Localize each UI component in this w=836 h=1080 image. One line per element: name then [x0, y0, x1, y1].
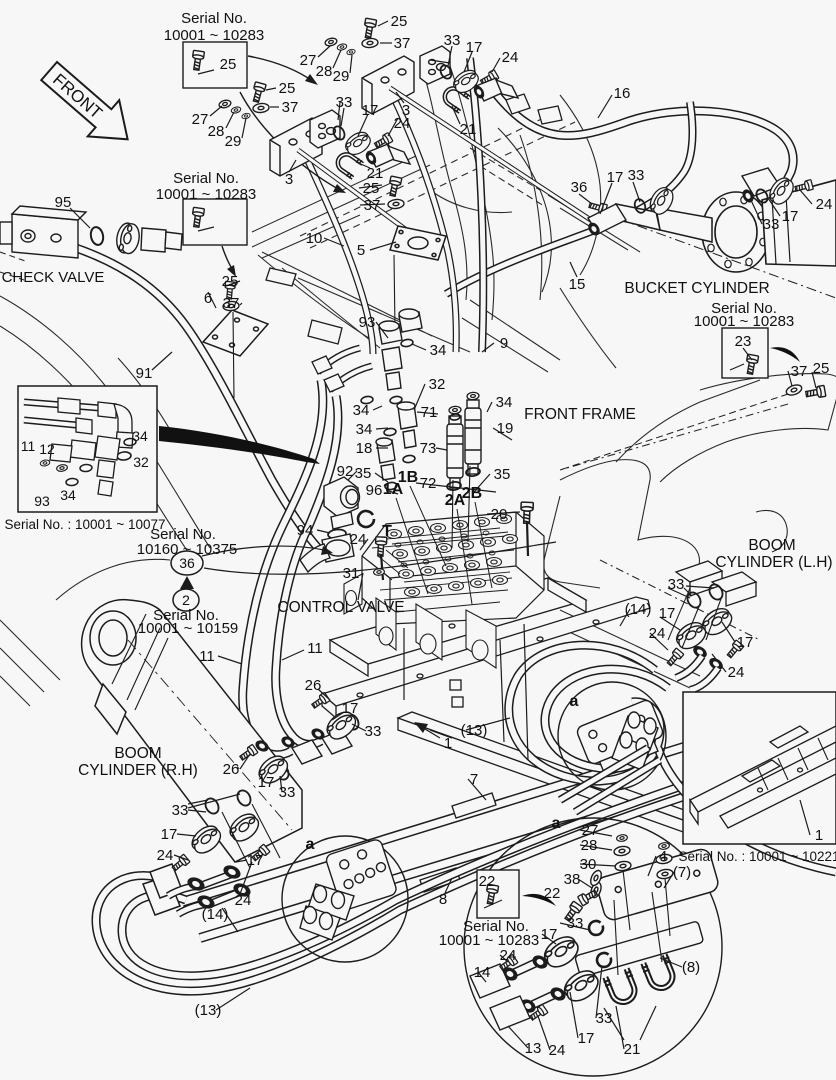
svg-text:a: a [570, 693, 579, 710]
svg-text:35: 35 [494, 466, 511, 483]
svg-text:10160 ~ 10375: 10160 ~ 10375 [137, 541, 238, 558]
svg-text:22: 22 [544, 885, 561, 902]
svg-text:30: 30 [580, 856, 597, 873]
svg-text:17: 17 [782, 208, 799, 225]
svg-text:Serial No.: Serial No. [173, 170, 239, 187]
svg-text:1: 1 [444, 735, 452, 752]
svg-text:10: 10 [306, 230, 323, 247]
svg-text:24: 24 [500, 947, 517, 964]
svg-text:18: 18 [356, 440, 373, 457]
svg-text:2: 2 [182, 592, 190, 608]
svg-text:6: 6 [204, 290, 212, 307]
svg-text:1: 1 [815, 827, 823, 844]
svg-text:33: 33 [668, 576, 685, 593]
svg-text:10001 ~ 10159: 10001 ~ 10159 [138, 620, 239, 637]
svg-text:10001 ~ 10283: 10001 ~ 10283 [156, 186, 257, 203]
svg-text:37: 37 [364, 197, 381, 214]
svg-text:23: 23 [735, 333, 752, 350]
svg-text:17: 17 [362, 102, 379, 119]
svg-text:25: 25 [279, 80, 296, 97]
svg-text:33: 33 [596, 1010, 613, 1027]
svg-text:27: 27 [300, 52, 317, 69]
svg-text:21: 21 [460, 121, 477, 138]
svg-text:14: 14 [474, 964, 491, 981]
svg-text:93: 93 [359, 314, 376, 331]
svg-text:5: 5 [357, 242, 365, 259]
svg-text:17: 17 [258, 774, 275, 791]
svg-text:72: 72 [420, 475, 437, 492]
svg-text:37: 37 [282, 99, 299, 116]
svg-text:11: 11 [21, 438, 36, 454]
svg-text:33: 33 [172, 802, 189, 819]
svg-text:(13): (13) [461, 722, 488, 739]
svg-text:32: 32 [133, 454, 149, 470]
svg-text:9: 9 [500, 335, 508, 352]
svg-text:92: 92 [337, 463, 354, 480]
svg-text:28: 28 [208, 123, 225, 140]
svg-text:33: 33 [279, 784, 296, 801]
svg-text:25: 25 [222, 273, 239, 290]
svg-text:CYLINDER (R.H): CYLINDER (R.H) [78, 762, 198, 779]
svg-text:33: 33 [763, 216, 780, 233]
svg-text:34: 34 [356, 421, 373, 438]
svg-text:33: 33 [336, 94, 353, 111]
svg-text:Serial No.: Serial No. [181, 10, 247, 27]
svg-text:17: 17 [541, 926, 558, 943]
svg-text:34: 34 [60, 487, 76, 503]
svg-text:33: 33 [365, 723, 382, 740]
svg-text:BOOM: BOOM [114, 745, 161, 762]
svg-text:91: 91 [136, 365, 153, 382]
svg-text:73: 73 [420, 440, 437, 457]
svg-text:33: 33 [444, 32, 461, 49]
svg-text:17: 17 [578, 1030, 595, 1047]
svg-text:16: 16 [614, 85, 631, 102]
svg-text:CYLINDER (L.H): CYLINDER (L.H) [715, 554, 832, 571]
svg-text:10001 ~ 10283: 10001 ~ 10283 [164, 27, 265, 44]
svg-text:22: 22 [479, 873, 496, 890]
svg-text:71: 71 [421, 404, 438, 421]
svg-text:CONTROL VALVE: CONTROL VALVE [277, 599, 404, 616]
svg-text:25: 25 [391, 13, 408, 30]
svg-text:95: 95 [55, 194, 72, 211]
svg-text:93: 93 [34, 493, 50, 509]
svg-text:7: 7 [470, 771, 478, 788]
svg-text:26: 26 [305, 677, 322, 694]
svg-text:24: 24 [502, 49, 519, 66]
svg-text:17: 17 [659, 605, 676, 622]
svg-text:24: 24 [649, 625, 666, 642]
svg-text:35: 35 [355, 465, 372, 482]
svg-text:15: 15 [569, 276, 586, 293]
svg-text:a: a [552, 815, 561, 832]
svg-text:25: 25 [220, 56, 237, 73]
svg-text:37: 37 [791, 363, 808, 380]
svg-text:(14): (14) [625, 601, 652, 618]
svg-text:CHECK VALVE: CHECK VALVE [2, 269, 105, 286]
svg-text:T: T [382, 523, 392, 540]
svg-text:20: 20 [491, 506, 508, 523]
svg-text:24: 24 [157, 847, 174, 864]
svg-text:24: 24 [350, 531, 367, 548]
svg-text:29: 29 [333, 68, 350, 85]
svg-text:(8): (8) [682, 959, 700, 976]
svg-text:19: 19 [497, 420, 514, 437]
svg-text:24: 24 [394, 115, 411, 132]
svg-text:11: 11 [199, 648, 215, 665]
svg-text:3: 3 [285, 171, 293, 188]
svg-text:29: 29 [225, 133, 242, 150]
svg-text:37: 37 [223, 295, 240, 312]
svg-text:2B: 2B [462, 485, 482, 502]
svg-text:21: 21 [624, 1041, 641, 1058]
svg-text:25: 25 [813, 360, 830, 377]
svg-text:17: 17 [607, 169, 624, 186]
svg-text:BOOM: BOOM [748, 537, 795, 554]
svg-text:11: 11 [307, 640, 323, 657]
svg-text:BUCKET CYLINDER: BUCKET CYLINDER [624, 280, 769, 297]
svg-text:31: 31 [343, 565, 360, 582]
svg-text:96: 96 [366, 482, 383, 499]
svg-text:17: 17 [161, 826, 178, 843]
svg-text:38: 38 [564, 871, 581, 888]
svg-text:1B: 1B [398, 469, 418, 486]
svg-text:28: 28 [581, 837, 598, 854]
svg-text:24: 24 [549, 1042, 566, 1059]
svg-text:36: 36 [571, 179, 588, 196]
svg-text:FRONT FRAME: FRONT FRAME [524, 406, 636, 423]
svg-text:34: 34 [132, 428, 148, 444]
svg-text:17: 17 [466, 39, 483, 56]
svg-text:12: 12 [39, 441, 55, 457]
svg-text:(14): (14) [202, 906, 229, 923]
svg-text:10001 ~ 10283: 10001 ~ 10283 [694, 313, 795, 330]
svg-text:28: 28 [316, 63, 333, 80]
svg-text:17: 17 [247, 852, 264, 869]
svg-text:34: 34 [353, 402, 370, 419]
svg-text:27: 27 [192, 111, 209, 128]
svg-text:(7): (7) [673, 864, 691, 881]
svg-text:24: 24 [728, 664, 745, 681]
svg-text:17: 17 [737, 634, 754, 651]
svg-text:Serial No. : 10001 ~ 10077: Serial No. : 10001 ~ 10077 [5, 517, 166, 532]
svg-text:10001 ~ 10283: 10001 ~ 10283 [439, 932, 540, 949]
svg-text:a: a [306, 836, 315, 853]
svg-text:94: 94 [297, 522, 314, 539]
svg-text:34: 34 [496, 394, 513, 411]
svg-text:26: 26 [223, 761, 240, 778]
svg-text:Serial No. : 10001 ~ 10221: Serial No. : 10001 ~ 10221 [679, 849, 836, 864]
svg-text:25: 25 [363, 180, 380, 197]
svg-text:33: 33 [567, 915, 584, 932]
svg-text:24: 24 [235, 892, 252, 909]
svg-text:4: 4 [659, 848, 667, 865]
svg-text:34: 34 [430, 342, 447, 359]
svg-text:32: 32 [429, 376, 446, 393]
svg-text:24: 24 [816, 196, 833, 213]
svg-text:13: 13 [525, 1040, 542, 1057]
svg-text:(13): (13) [195, 1002, 222, 1019]
svg-text:37: 37 [394, 35, 411, 52]
svg-text:17: 17 [342, 700, 359, 717]
svg-text:8: 8 [439, 891, 447, 908]
svg-text:33: 33 [628, 167, 645, 184]
